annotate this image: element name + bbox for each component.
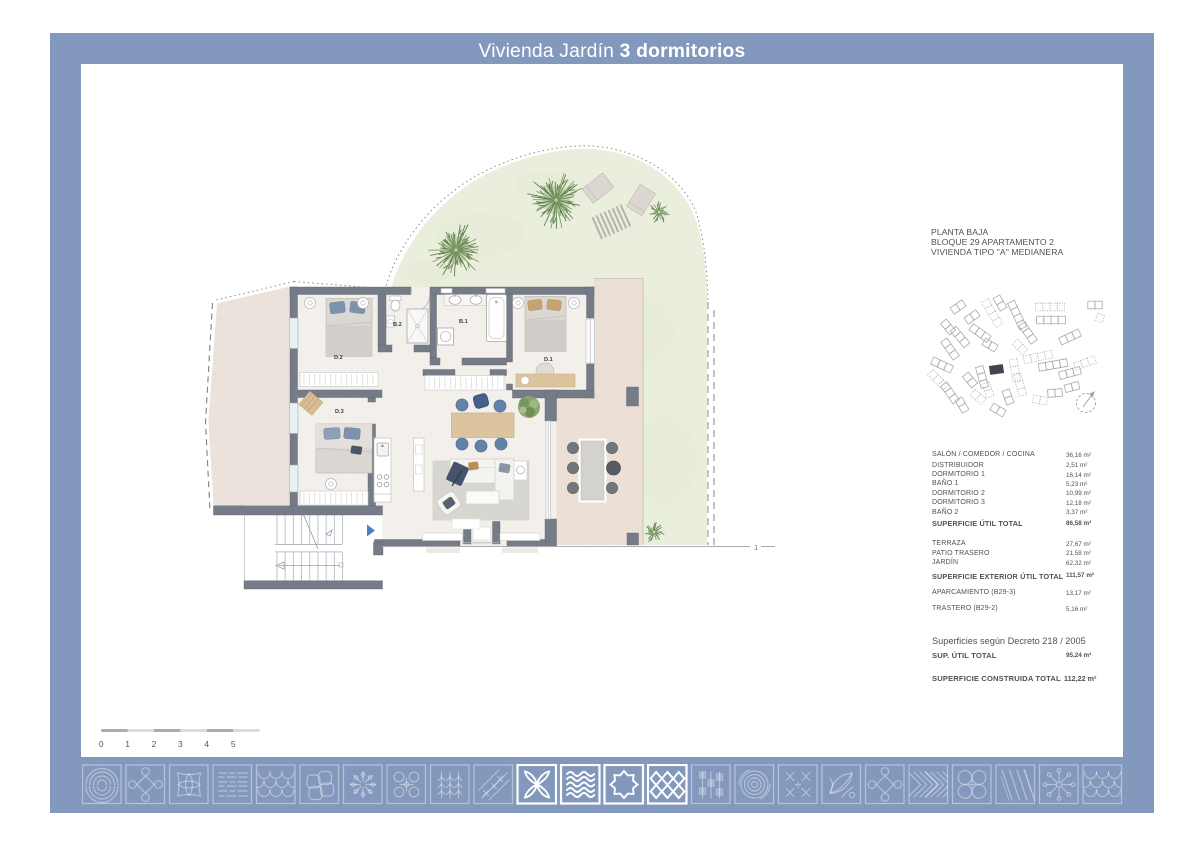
- svg-text:0: 0: [99, 739, 104, 749]
- svg-text:D.2: D.2: [334, 355, 343, 361]
- svg-text:1: 1: [125, 739, 130, 749]
- svg-text:5: 5: [231, 739, 236, 749]
- svg-text:2: 2: [152, 739, 157, 749]
- svg-text:D.3: D.3: [335, 409, 344, 415]
- svg-text:B.2: B.2: [393, 322, 402, 328]
- svg-text:3: 3: [178, 739, 183, 749]
- svg-text:B.1: B.1: [459, 319, 468, 325]
- svg-text:1: 1: [754, 543, 758, 552]
- svg-text:4: 4: [204, 739, 209, 749]
- svg-text:D.1: D.1: [544, 357, 553, 363]
